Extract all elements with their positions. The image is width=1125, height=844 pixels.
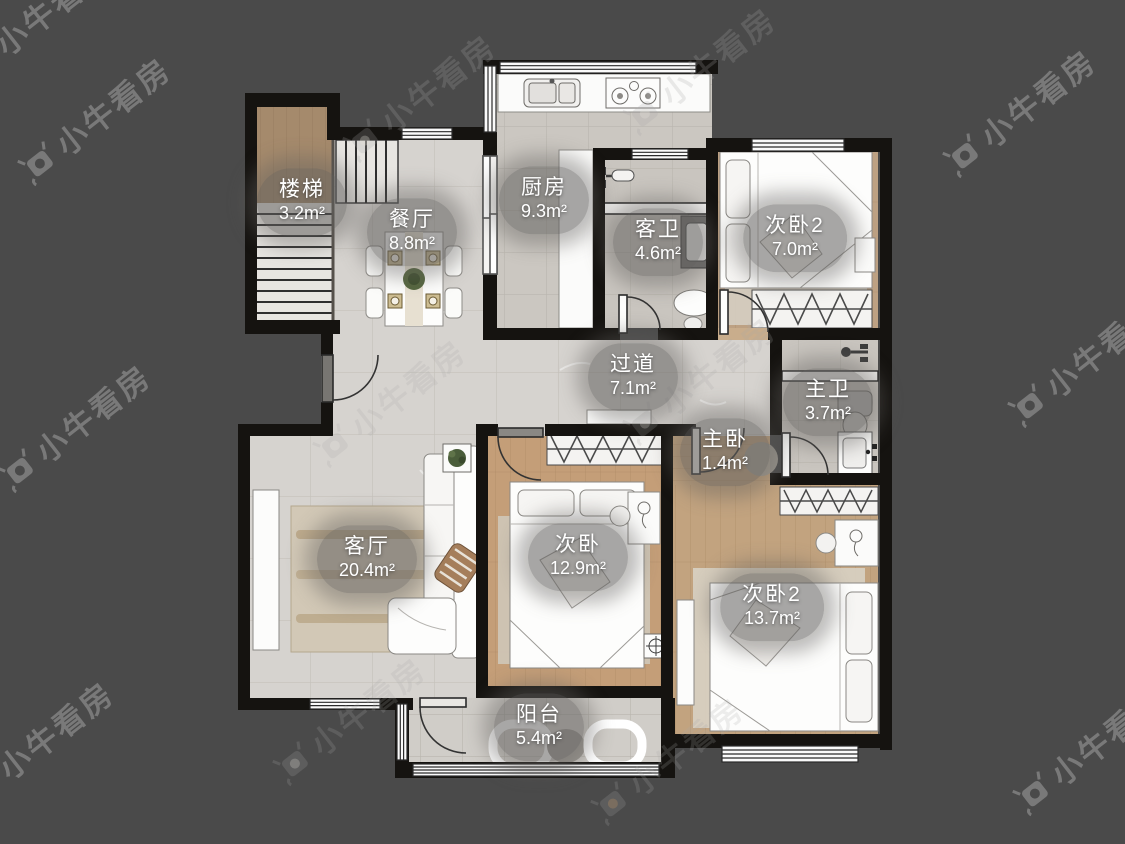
kitchen-sink-icon — [524, 79, 580, 108]
window-icon — [752, 139, 844, 151]
wardrobe-icon — [780, 487, 878, 515]
sink-icon — [838, 432, 877, 474]
wardrobe-icon — [752, 290, 872, 328]
window-icon — [484, 66, 496, 132]
bed-icon — [720, 152, 872, 288]
half-wall — [782, 371, 878, 381]
window-icon — [722, 746, 858, 762]
wardrobe-icon — [547, 433, 665, 465]
tv-stand-icon — [253, 490, 279, 650]
half-wall — [596, 203, 708, 214]
drum-icon — [547, 729, 585, 763]
console-table-icon — [587, 410, 651, 424]
floorplan-drawing — [0, 0, 1125, 844]
window-icon — [310, 699, 380, 709]
window-icon — [500, 62, 696, 73]
window-icon — [632, 149, 688, 159]
bed-icon — [710, 583, 878, 731]
bedroom2-top-furniture — [720, 152, 875, 328]
kitchen-sliding-door-icon — [483, 156, 497, 274]
balcony-floor — [409, 698, 661, 766]
tv-stand-icon — [677, 600, 694, 705]
plant-icon — [443, 444, 471, 472]
window-icon — [413, 764, 659, 776]
nightstand-icon — [855, 238, 875, 272]
stove-icon — [606, 78, 660, 108]
floorplan-screenshot: 小牛看房 小牛看房 小牛看房 小牛看房 小牛看房 小牛看房 小牛看房 小牛看房 — [0, 0, 1125, 844]
window-icon — [397, 704, 407, 760]
master-bedroom-passage-floor — [673, 436, 778, 485]
window-icon — [402, 128, 452, 139]
